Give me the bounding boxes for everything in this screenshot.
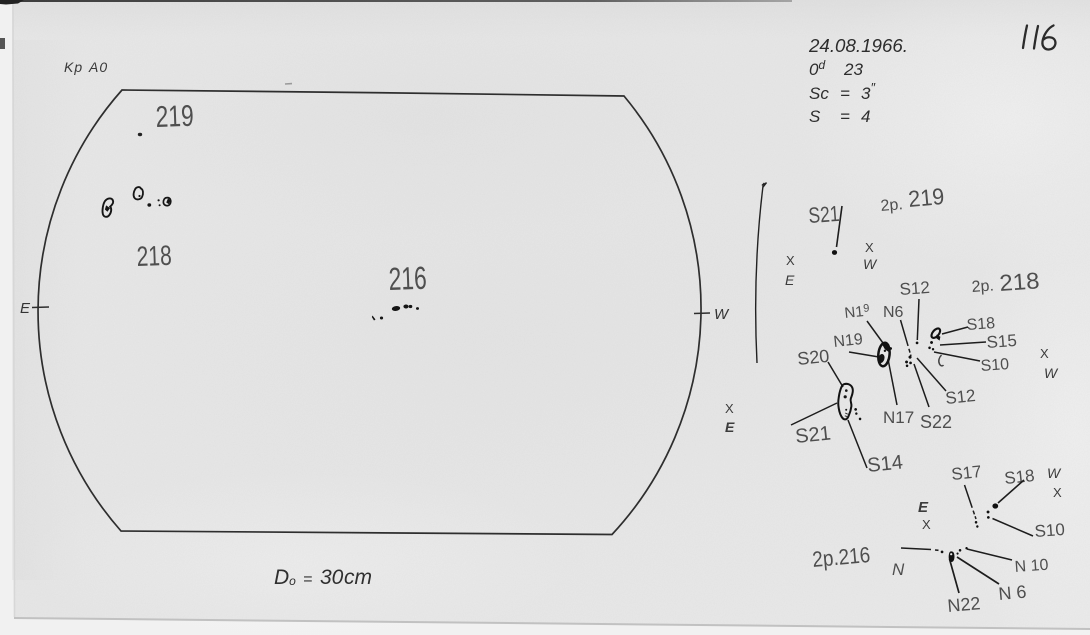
svg-text:24.08.1966.: 24.08.1966. — [808, 36, 908, 56]
svg-text:E: E — [20, 300, 31, 317]
svg-text:2p.216: 2p.216 — [811, 542, 871, 572]
svg-text:S=4: S=4 — [809, 107, 870, 126]
svg-text:N 10: N 10 — [1014, 557, 1049, 576]
svg-text:S17: S17 — [950, 462, 982, 484]
svg-text:2p.: 2p. — [880, 196, 904, 215]
svg-text:N19: N19 — [833, 331, 864, 351]
svg-text:X: X — [865, 240, 874, 255]
svg-text:E: E — [918, 499, 929, 516]
svg-text:S21: S21 — [808, 201, 841, 228]
svg-text:S10: S10 — [1034, 520, 1066, 541]
svg-text:218: 218 — [136, 240, 172, 272]
svg-text:Do=30cm: Do=30cm — [274, 566, 372, 589]
svg-text:Sc=3″: Sc=3″ — [809, 80, 875, 103]
svg-text:N: N — [892, 560, 905, 579]
svg-text:S22: S22 — [920, 412, 952, 432]
svg-text:N22: N22 — [947, 593, 982, 616]
svg-text:W: W — [714, 306, 730, 323]
svg-text:S21: S21 — [794, 422, 832, 448]
svg-text:E: E — [785, 272, 795, 288]
svg-text:X: X — [922, 517, 931, 532]
svg-text:216: 216 — [388, 260, 427, 297]
svg-text:2p.: 2p. — [971, 277, 994, 296]
svg-text:W: W — [1044, 365, 1059, 381]
svg-text:219: 219 — [155, 100, 194, 134]
svg-text:E: E — [725, 419, 735, 435]
svg-text:S10: S10 — [980, 356, 1010, 375]
svg-text:X: X — [1040, 346, 1049, 361]
svg-text:S18: S18 — [966, 315, 996, 334]
svg-text:W: W — [863, 256, 878, 272]
svg-text:X: X — [786, 253, 795, 268]
svg-text:218: 218 — [999, 267, 1041, 296]
svg-text:219: 219 — [907, 183, 945, 212]
svg-text:S15: S15 — [986, 331, 1018, 352]
svg-text:S20: S20 — [796, 346, 830, 369]
svg-text:S12: S12 — [944, 386, 976, 408]
svg-text:S12: S12 — [899, 278, 931, 299]
svg-text:S14: S14 — [866, 451, 904, 477]
svg-text:N17: N17 — [883, 408, 914, 427]
svg-text:N6: N6 — [883, 304, 904, 321]
svg-text:X: X — [725, 401, 734, 416]
svg-text:W: W — [1047, 465, 1062, 481]
svg-text:N 6: N 6 — [998, 582, 1028, 604]
svg-text:X: X — [1053, 485, 1062, 500]
